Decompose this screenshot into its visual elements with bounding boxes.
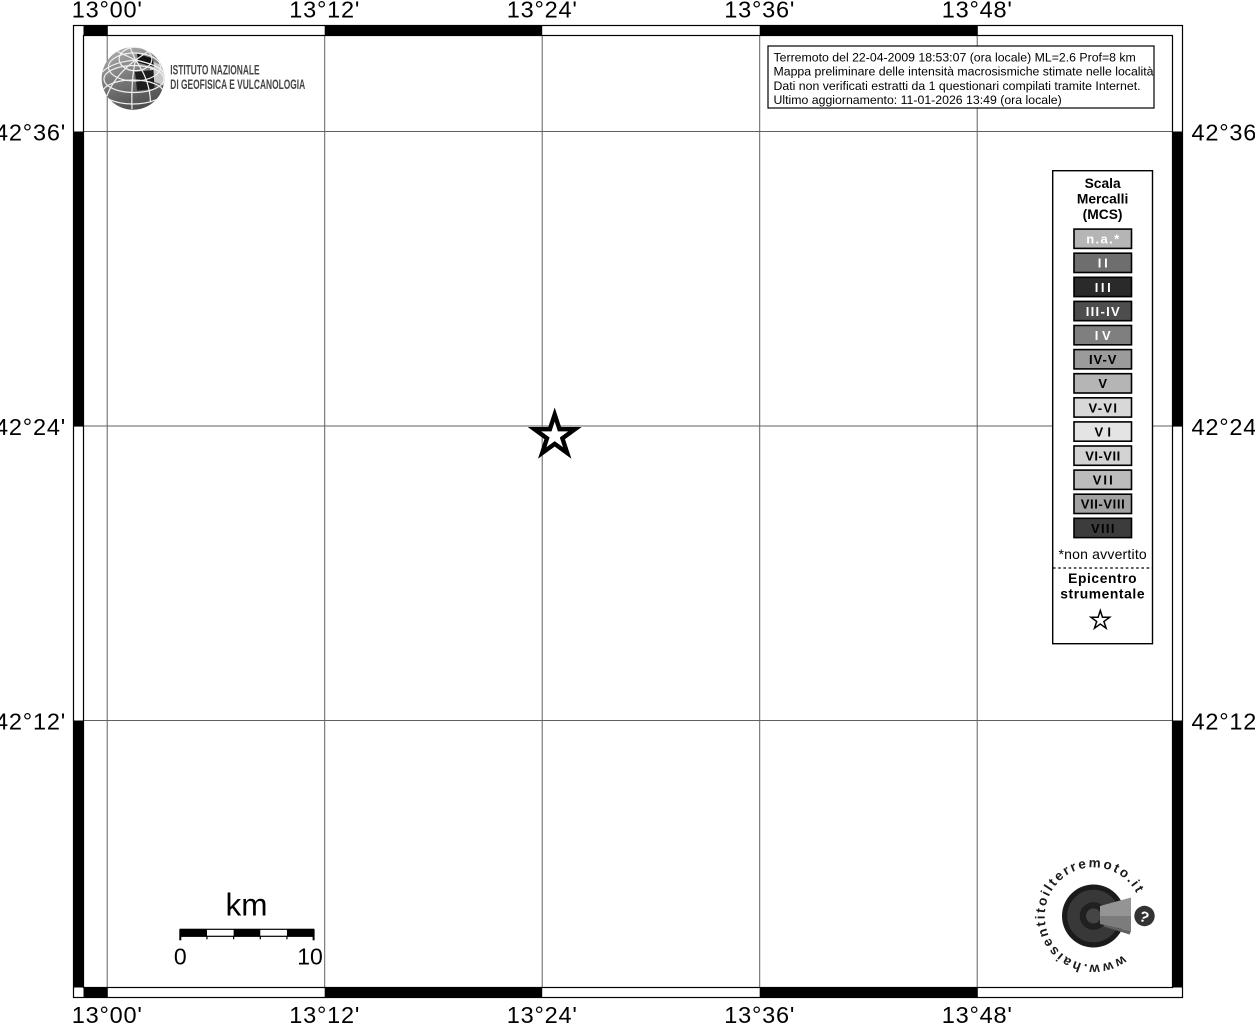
svg-text:km: km [226, 887, 268, 923]
svg-text:0: 0 [174, 944, 187, 970]
svg-text:Terremoto del 22-04-2009 18:53: Terremoto del 22-04-2009 18:53:07 (ora l… [774, 51, 1136, 65]
svg-text:13°36': 13°36' [724, 0, 795, 23]
svg-text:(MCS): (MCS) [1083, 207, 1123, 222]
svg-text:*non avvertito: *non avvertito [1058, 546, 1146, 562]
svg-text:13°48': 13°48' [942, 1002, 1013, 1024]
svg-text:42°36': 42°36' [1192, 120, 1255, 146]
svg-text:42°24': 42°24' [1192, 414, 1255, 440]
svg-text:DI GEOFISICA E VULCANOLOGIA: DI GEOFISICA E VULCANOLOGIA [170, 78, 305, 93]
svg-text:13°24': 13°24' [507, 1002, 578, 1024]
svg-text:VII-VIII: VII-VIII [1081, 497, 1125, 512]
svg-text:III: III [1095, 280, 1111, 295]
svg-text:VI-VII: VI-VII [1085, 449, 1120, 464]
svg-text:Ultimo aggiornamento: 11-01-20: Ultimo aggiornamento: 11-01-2026 13:49 (… [774, 93, 1062, 107]
svg-text:13°12': 13°12' [289, 0, 360, 23]
svg-text:VII: VII [1093, 473, 1113, 488]
svg-text:n.a.*: n.a.* [1086, 232, 1120, 247]
svg-text:10: 10 [297, 944, 323, 970]
svg-text:Mappa preliminare delle intens: Mappa preliminare delle intensità macros… [774, 65, 1154, 79]
svg-text:Dati non verificati estratti d: Dati non verificati estratti da 1 questi… [774, 79, 1141, 93]
svg-text:42°12': 42°12' [1192, 709, 1255, 735]
svg-text:42°36': 42°36' [0, 120, 66, 146]
svg-text:VI: VI [1094, 424, 1111, 439]
svg-text:strumentale: strumentale [1060, 587, 1145, 602]
svg-text:42°24': 42°24' [0, 414, 66, 440]
svg-text:13°00': 13°00' [72, 1002, 143, 1024]
svg-text:VIII: VIII [1091, 521, 1115, 536]
svg-text:13°12': 13°12' [289, 1002, 360, 1024]
svg-text:ISTITUTO NAZIONALE: ISTITUTO NAZIONALE [170, 63, 260, 78]
svg-text:Mercalli: Mercalli [1077, 192, 1128, 207]
svg-text:13°48': 13°48' [942, 0, 1013, 23]
svg-text:42°12': 42°12' [0, 709, 66, 735]
svg-text:13°24': 13°24' [507, 0, 578, 23]
svg-text:13°00': 13°00' [72, 0, 143, 23]
svg-text:III-IV: III-IV [1086, 304, 1120, 319]
svg-text:Epicentro: Epicentro [1068, 571, 1137, 586]
svg-text:V: V [1098, 376, 1107, 391]
svg-text:Scala: Scala [1085, 176, 1121, 191]
svg-text:V-VI: V-VI [1088, 400, 1117, 415]
svg-text:13°36': 13°36' [724, 1002, 795, 1024]
svg-text:IV: IV [1095, 328, 1111, 343]
svg-text:IV-V: IV-V [1089, 352, 1117, 367]
